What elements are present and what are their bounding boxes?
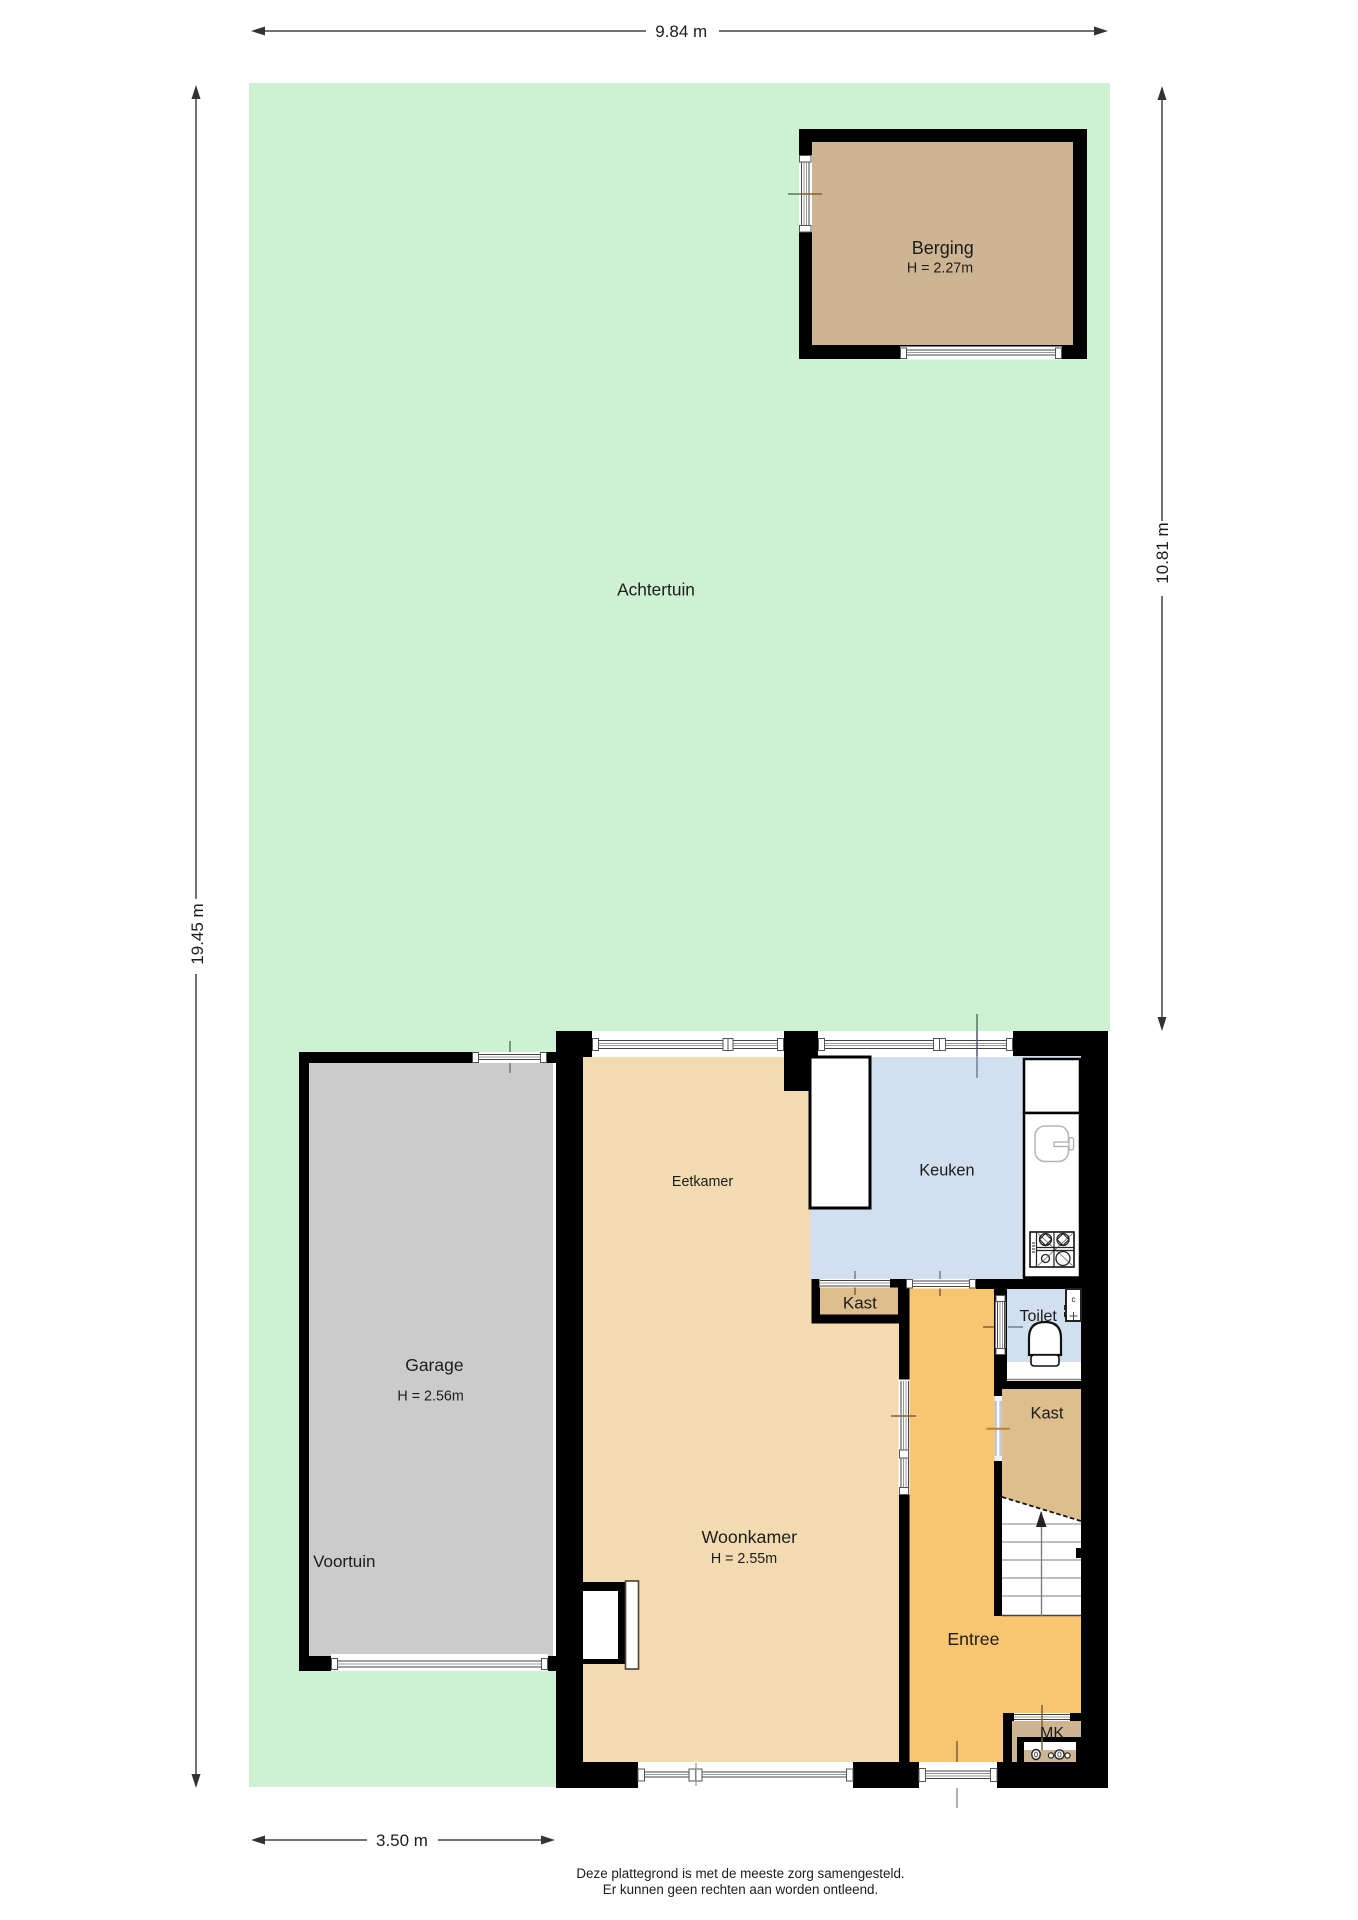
svg-text:H = 2.55m: H = 2.55m: [711, 1551, 777, 1567]
svg-text:Kast: Kast: [843, 1294, 877, 1313]
svg-text:19.45 m: 19.45 m: [188, 903, 207, 964]
svg-text:Toilet: Toilet: [1020, 1308, 1058, 1325]
svg-text:10.81 m: 10.81 m: [1153, 522, 1172, 583]
svg-text:H = 2.27m: H = 2.27m: [907, 261, 973, 277]
svg-text:Voortuin: Voortuin: [313, 1552, 375, 1571]
svg-text:Entree: Entree: [947, 1629, 999, 1649]
svg-text:Achtertuin: Achtertuin: [617, 580, 695, 600]
svg-text:Woonkamer: Woonkamer: [702, 1527, 798, 1547]
svg-text:Eetkamer: Eetkamer: [672, 1174, 733, 1190]
svg-text:3.50 m: 3.50 m: [376, 1831, 428, 1850]
svg-text:Berging: Berging: [912, 238, 974, 258]
svg-text:Kast: Kast: [1030, 1405, 1063, 1423]
svg-text:9.84 m: 9.84 m: [655, 22, 707, 41]
svg-text:c: c: [1072, 1295, 1076, 1304]
svg-text:Deze plattegrond is met de mee: Deze plattegrond is met de meeste zorg s…: [576, 1866, 904, 1881]
svg-text:Er kunnen geen rechten aan wor: Er kunnen geen rechten aan worden ontlee…: [603, 1882, 878, 1897]
svg-text:Garage: Garage: [405, 1355, 463, 1375]
svg-text:H = 2.56m: H = 2.56m: [397, 1389, 463, 1405]
svg-text:MK: MK: [1040, 1725, 1064, 1742]
svg-text:Keuken: Keuken: [919, 1162, 974, 1180]
